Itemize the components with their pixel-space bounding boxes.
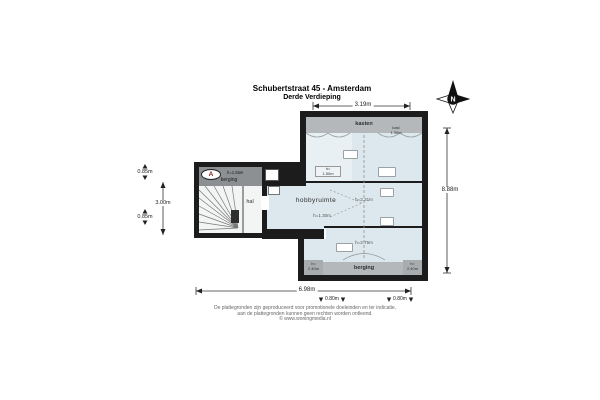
- height-label-corner-right: h= 2.40m: [404, 262, 421, 271]
- height-label-annex: h=1.55m: [227, 170, 243, 175]
- dimension-label-strip-right: 0.80m: [393, 296, 407, 302]
- arrow-left-icon: [196, 289, 202, 294]
- floorplan-page: Schubertstraat 45 - Amsterdam Derde Verd…: [0, 0, 600, 400]
- dimension-label-top: 3.19m: [353, 102, 374, 108]
- copyright-line: © www.woningmedia.nl: [5, 317, 600, 323]
- dimension-label-left-top: 0.85m: [137, 169, 152, 175]
- viewpoint-marker-a: A: [201, 169, 221, 180]
- dimension-label-bottom: 6.98m: [297, 287, 318, 293]
- arrow-down-icon: [445, 267, 450, 273]
- room-label-berging-annex: berging: [221, 177, 238, 183]
- dimension-right-line: [443, 128, 451, 273]
- arrow-down-icon: [143, 176, 148, 181]
- room-label-hobbyruimte: hobbyruimte: [296, 197, 336, 204]
- compass-north-label: N: [450, 97, 455, 104]
- room-label-kasten: kasten: [355, 121, 372, 127]
- height-label-under-kasten: h= 1.50m: [315, 166, 341, 177]
- disclaimer-text: De plattegronden zijn geproduceerd voor …: [5, 306, 600, 323]
- room-label-berging-attic: berging: [354, 265, 374, 271]
- dimension-label-right: 8.88m: [440, 187, 461, 193]
- arrow-down-icon: [161, 229, 166, 235]
- arrow-up-icon: [445, 128, 450, 134]
- dimension-label-left-mid: 3.00m: [153, 200, 172, 206]
- arrow-down-icon: [409, 298, 413, 303]
- height-label-hobby-low: h=1.30m: [313, 213, 331, 218]
- dimension-label-left-bottom: 0.85m: [137, 214, 152, 220]
- height-label-lower-ridge: h=2.75m: [355, 240, 373, 245]
- stair-newel: [231, 210, 239, 223]
- arrow-down-icon: [387, 298, 391, 303]
- dimension-label-strip-left: 0.80m: [325, 296, 339, 302]
- height-label-corner-left: h= 2.40m: [305, 262, 322, 271]
- arrow-down-icon: [341, 298, 345, 303]
- staircase-icon: [199, 186, 243, 233]
- arrow-up-icon: [143, 209, 148, 214]
- height-label-kast-top: kast 1.30m: [384, 126, 408, 135]
- arrow-down-icon: [319, 298, 323, 303]
- arrow-right-icon: [405, 289, 411, 294]
- north-arrow-icon: N: [437, 80, 469, 113]
- height-label-hobby-ridge: h=2.31m: [355, 197, 373, 202]
- arrow-left-icon: [313, 104, 319, 109]
- arrow-right-icon: [404, 104, 410, 109]
- arrow-up-icon: [143, 164, 148, 169]
- arrow-up-icon: [161, 182, 166, 188]
- room-label-hal: hal: [246, 199, 253, 205]
- arrow-down-icon: [143, 221, 148, 226]
